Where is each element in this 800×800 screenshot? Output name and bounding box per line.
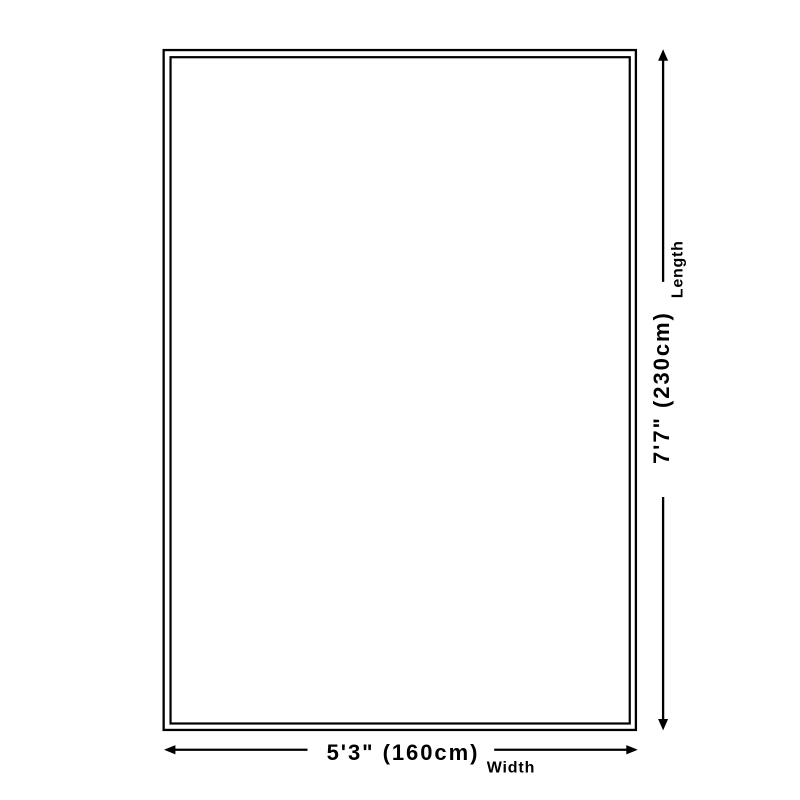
svg-text:7'7" (230cm): 7'7" (230cm) — [649, 311, 674, 464]
svg-text:Length: Length — [669, 240, 686, 298]
svg-text:Width: Width — [487, 759, 536, 776]
svg-text:5'3" (160cm): 5'3" (160cm) — [327, 740, 480, 765]
